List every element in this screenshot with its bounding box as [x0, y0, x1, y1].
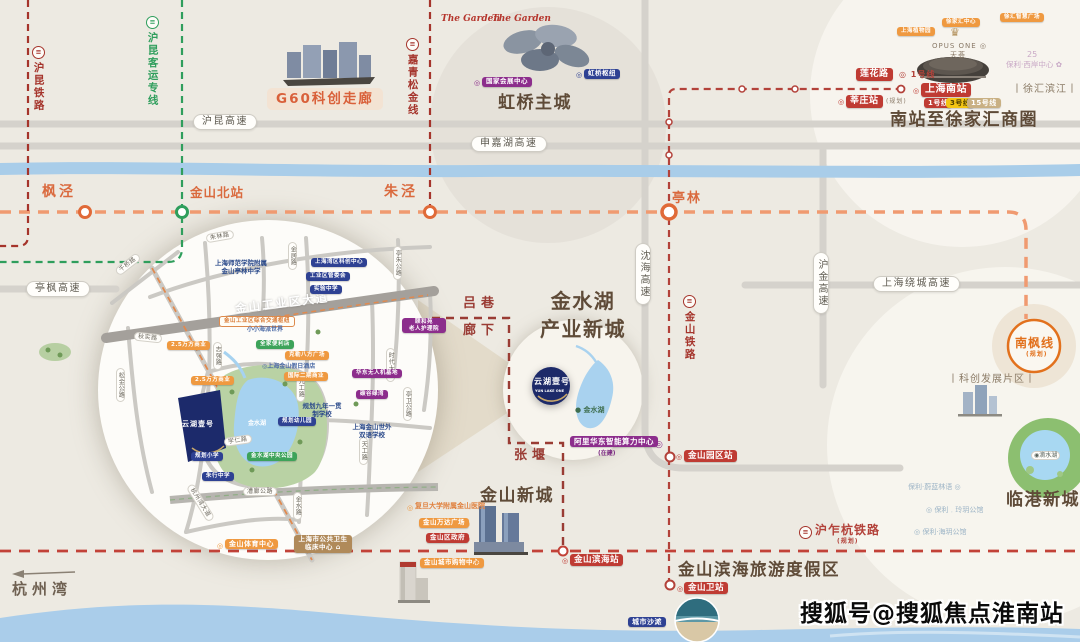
hukun-expwy-pill: 沪昆高速	[193, 114, 257, 130]
south-station-title: 南站至徐家汇商圈	[890, 110, 1038, 130]
inset-road-caolang: 漕廊公路	[243, 487, 277, 496]
hukun-hsr-label: 沪昆客运专线	[146, 32, 159, 107]
inset-haipai-label: 小小海派世界	[247, 326, 283, 333]
inset-bilingual-school-label: 上海金山世外 双语学校	[348, 423, 396, 439]
inset-phase2-badge: 国际二期商业	[284, 372, 328, 381]
xinzhuang-badge: 莘庄站	[846, 95, 883, 108]
inset-commercial-1-badge: 2.5万方商业	[167, 341, 210, 350]
poly-westbund-label: 保利·西岸中心 ✿	[1006, 60, 1062, 69]
inset-road-zhulin: 朱林路	[205, 230, 234, 244]
station-tinglin-label: 亭林	[672, 191, 702, 207]
inset-nine-year-school-label: 规划九年一贯 制学校	[300, 402, 344, 418]
inset-zhuhang-school-badge: 朱行中学	[202, 472, 234, 481]
garden-logo-2: The Garden	[492, 14, 551, 25]
hongqiao-title: 虹桥主城	[498, 93, 572, 113]
xujiahui-center-badge: 徐家汇中心	[942, 18, 980, 27]
inset-road-hangzhouwan: 杭州湾大道	[186, 483, 215, 522]
jiaqingsongjin-label: 嘉青松金线	[406, 54, 419, 117]
inset-road-qiushi: 秋实路	[134, 332, 162, 344]
inset-holiday-inn-label: ◎上海金山假日酒店	[262, 363, 315, 370]
district-gov-badge: 金山区政府	[426, 533, 469, 543]
ali-computing-dot: ◎	[655, 440, 663, 451]
ali-computing-note: (在建)	[598, 450, 616, 457]
nanfeng-line-label: 南枫线	[1015, 336, 1054, 350]
wanda-plaza-dot: ◎	[464, 520, 470, 528]
xinzhuang-note: (规划)	[886, 98, 907, 105]
district-gov-dot: ◎	[464, 535, 470, 543]
metro-line15-badge: 15号线	[967, 98, 1001, 108]
jinshan-park-station-badge: 金山园区站	[684, 450, 737, 462]
city-mall-dot: ◎	[474, 560, 480, 568]
inset-road-jinju: 金居路	[288, 242, 297, 270]
hukun-hsr-icon: ≡	[146, 16, 159, 29]
inset-road-tingzhu: 亭朱公路	[393, 246, 402, 280]
inset-industrial-ave-label: 金山工业区大道	[235, 291, 330, 316]
shanghai-south-dot: ◎	[913, 87, 919, 95]
map-canvas: ≡沪昆铁路≡沪昆客运专线≡嘉青松金线G60科创走廊沪昆高速申嘉湖高速亭枫高速枫泾…	[0, 0, 1080, 642]
inset-commercial-2-badge: 2.5万方商业	[191, 376, 234, 385]
map-labels: ≡沪昆铁路≡沪昆客运专线≡嘉青松金线G60科创走廊沪昆高速申嘉湖高速亭枫高速枫泾…	[0, 0, 1080, 642]
shenhai-expwy-pill: 沈海高速	[635, 243, 651, 305]
fudan-hospital-dot: ◎	[407, 504, 413, 512]
nanfeng-line-note: (规划)	[1026, 351, 1048, 358]
inset-road-jinshui: 金水路	[293, 492, 302, 520]
inset-kele-plaza-badge: 克勒八方广场	[285, 351, 329, 360]
binhai-station-dot: ◎	[562, 557, 568, 565]
necc-badge: 国家会展中心	[482, 77, 532, 87]
jinshanwei-dot: ◎	[677, 585, 683, 593]
lingang-title: 临港新城	[1006, 490, 1080, 510]
poly-project-1: 保利·蔚蓝林语 ◎	[908, 483, 961, 491]
inset-kindergarten-badge: 规划幼儿园	[278, 417, 316, 426]
inset-road-tingwei: 亭卫公路	[403, 387, 412, 421]
sports-center-dot: ◎	[217, 542, 223, 550]
line1-transfer-label: ◎ 1号线	[899, 70, 935, 80]
inset-familymart-badge: 全家便利店	[256, 340, 294, 349]
public-health-badge: 上海市公共卫生 临床中心 ⌂	[294, 535, 352, 553]
jinshan-railway-icon: ≡	[683, 295, 696, 308]
poly-project-2: ◎ 保利﹒玲玥公馆	[926, 506, 983, 514]
hukun-railway-icon: ≡	[32, 46, 45, 59]
jiaqingsongjin-icon: ≡	[406, 38, 419, 51]
inset-road-qianqiao: 千桥路	[114, 253, 141, 277]
g60-corridor-label: G60科创走廊	[267, 88, 383, 110]
hukun-railway-label: 沪昆铁路	[32, 62, 45, 112]
inset-primary-school-badge: 规划小学	[191, 452, 223, 461]
zhangyan-label: 张堰	[514, 448, 550, 464]
city-beach-dot: ◎	[659, 619, 665, 627]
inset-uav-base-badge: 华东无人机基地	[352, 369, 402, 378]
inset-transport-hub-badge: 金山工业区综合交通枢纽	[219, 316, 295, 327]
inset-tinglin-school-label: 上海师范学院附属 金山亭林中学	[206, 259, 276, 275]
hangzhou-bay-label: 杭州湾	[12, 580, 72, 598]
luxiang-label: 吕巷	[463, 296, 499, 312]
inset-tangu-badge: 碳谷绿湾	[356, 390, 388, 399]
inset-road-tiangong: 天工路	[359, 437, 368, 465]
lianhua-rd-badge: 莲花路	[856, 68, 893, 81]
binhai-resort-title: 金山滨海旅游度假区	[678, 560, 840, 580]
sports-center-badge: 金山体育中心	[225, 539, 278, 549]
hujin-expwy-pill: 沪金高速	[813, 252, 829, 314]
langxia-label: 廊下	[463, 323, 499, 339]
inset-lake-park-badge: 金水湖中央公园	[247, 452, 297, 461]
inset-lake-label: 金水湖	[248, 420, 266, 427]
hongqiao-hub-badge: 虹桥枢纽	[584, 69, 620, 79]
tingfeng-expwy-pill: 亭枫高速	[26, 281, 90, 297]
hongqiao-hub-dot: ◎	[576, 71, 582, 79]
yunhu-logo-sub: YUN LAKE ONE	[535, 389, 564, 393]
inset-bayarea-center-badge: 上海湾区科创中心	[311, 258, 367, 267]
xinzhuang-dot: ◎	[838, 98, 844, 106]
jinshanwei-station-badge: 金山卫站	[684, 582, 728, 594]
jinshuihu-title: 金水湖 产业新城	[523, 287, 643, 343]
watermark: 搜狐号@搜狐焦点淮南站	[800, 601, 1064, 629]
station-fengjing-label: 枫泾	[42, 184, 76, 201]
fudan-hospital-label: 复旦大学附属金山医院	[415, 502, 485, 510]
yunhu-logo-text: 云湖壹号	[534, 377, 570, 387]
necc-dot: ◎	[474, 79, 480, 87]
opus-one-label: OPUS ONE ◎	[932, 42, 987, 50]
jinshan-railway-label: 金山铁路	[683, 311, 696, 361]
shanghai-south-badge: 上海南站	[921, 83, 971, 97]
inset-school-badge: 实验中学	[310, 285, 342, 294]
shenjiahu-expwy-pill: 申嘉湖高速	[471, 136, 547, 152]
huzhahang-label: 沪乍杭铁路	[815, 523, 880, 537]
opus-crown-icon: ♛	[950, 26, 960, 39]
inset-road-xueren: 学仁路	[223, 434, 252, 447]
xuhui-plaza-badge: 徐汇智慧广场	[1000, 13, 1044, 22]
huzhahang-note: (规划)	[837, 538, 859, 545]
inset-nursing-badge: 颐和苑 老人护理院	[402, 318, 446, 333]
dishui-lake-label: ◉滴水湖	[1031, 451, 1060, 460]
binhai-station-badge: 金山滨海站	[570, 554, 623, 566]
inset-project-logo-text: 云湖壹号	[182, 420, 214, 428]
botanical-garden-badge: 上海植物园	[897, 27, 935, 36]
wanda-plaza-badge: 金山万达广场	[419, 518, 469, 528]
kechuang-district-label: 丨科创发展片区丨	[948, 374, 1036, 386]
poly-project-3: ◎ 保利·海玥公馆	[914, 528, 967, 536]
station-zhujing-label: 朱泾	[384, 184, 418, 201]
inset-admin-badge: 工业区管委会	[306, 272, 350, 281]
station-jinshanbei-label: 金山北站	[190, 185, 244, 200]
jinshui-lake-label: ● 金水湖	[575, 406, 605, 414]
inset-road-zhiqiang: 志强路	[213, 342, 222, 370]
poly-25-label: 25	[1027, 50, 1037, 60]
park-station-dot: ◎	[676, 453, 682, 461]
inset-road-songjin: 松金公路	[116, 368, 125, 402]
raocheng-expwy-pill: 上海绕城高速	[873, 276, 960, 292]
jinshan-newcity-title: 金山新城	[480, 486, 554, 506]
huzhahang-icon: ≡	[799, 526, 812, 539]
tianhui-label: 天荟	[950, 51, 966, 59]
xuhui-riverside-label: 丨徐汇滨江丨	[1012, 84, 1078, 96]
ali-computing-badge: 阿里华东智能算力中心	[570, 436, 658, 447]
